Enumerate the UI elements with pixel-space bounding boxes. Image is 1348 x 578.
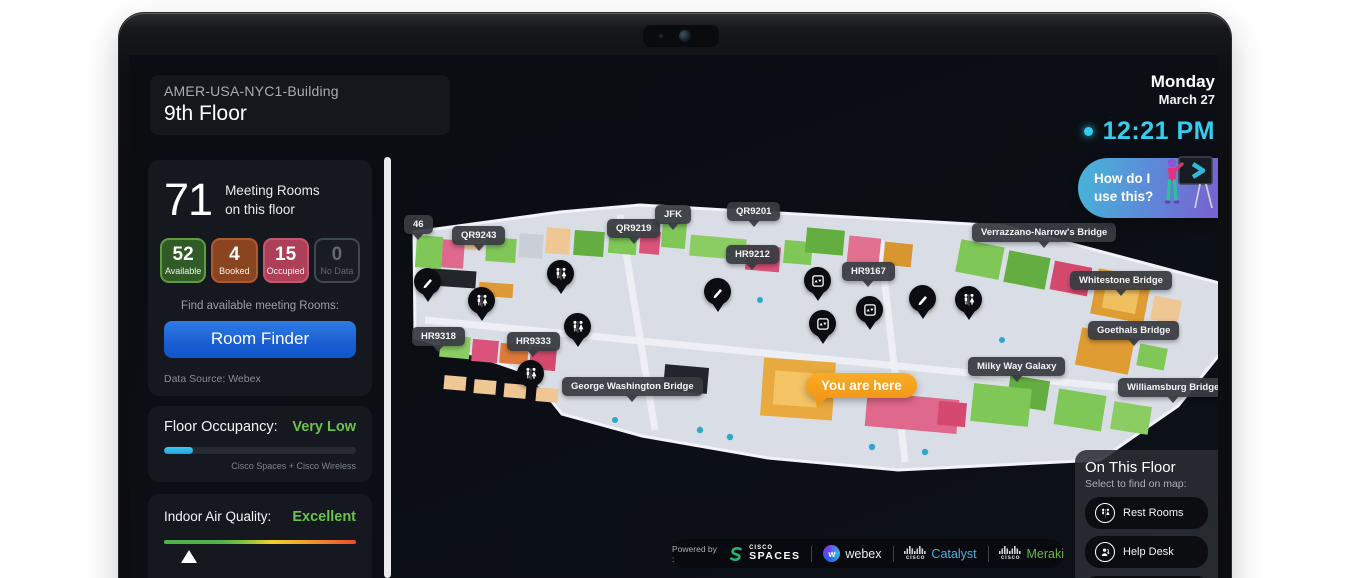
map-label-text: JFK [664, 209, 682, 220]
floor-feature-button[interactable]: Rest Rooms [1085, 497, 1208, 529]
rooms-count-label: Meeting Rooms on this floor [225, 177, 320, 222]
map-label: HR9212 [726, 245, 779, 264]
map-pin[interactable] [909, 285, 936, 312]
map-pin[interactable] [804, 267, 831, 294]
map-label-text: Goethals Bridge [1097, 325, 1170, 336]
air-quality-gradient-bar [164, 540, 356, 544]
cisco-spaces-logo: CISCO SPACES [728, 545, 800, 562]
page: AMER-USA-NYC1-Building 9th Floor Monday … [0, 0, 1348, 578]
rooms-label-line1: Meeting Rooms [225, 182, 320, 201]
map-label: QR9219 [607, 219, 660, 238]
restroom-icon [554, 267, 568, 281]
you-are-here-badge: You are here [806, 373, 917, 398]
map-label: Whitestone Bridge [1070, 271, 1172, 290]
find-rooms-label: Find available meeting Rooms: [148, 300, 372, 312]
day-label: Monday [1084, 72, 1215, 92]
cisco-text: cisco [1001, 555, 1020, 562]
map-label: Milky Way Galaxy [968, 357, 1065, 376]
datetime-panel: Monday March 27 12:21 PM [1084, 72, 1215, 146]
how-to-use-label: How do I use this? [1094, 170, 1153, 205]
aqi-marker [181, 550, 197, 563]
map-label-text: HR9212 [735, 249, 770, 260]
pen-icon [421, 275, 435, 289]
badge-value: 52 [173, 244, 194, 266]
occupancy-bar [164, 447, 356, 454]
cisco-text: cisco [906, 555, 925, 562]
map-label-text: George Washington Bridge [571, 381, 694, 392]
map-label: 46 [404, 215, 433, 234]
air-quality-label: Indoor Air Quality: [164, 509, 271, 524]
webex-icon: w [823, 545, 840, 562]
map-label: QR9201 [727, 202, 780, 221]
display-screen: AMER-USA-NYC1-Building 9th Floor Monday … [130, 55, 1218, 578]
meeting-rooms-panel: 71 Meeting Rooms on this floor 52 Availa… [148, 160, 372, 396]
spaces-swirl-icon [728, 546, 744, 562]
map-label: QR9243 [452, 226, 505, 245]
room-status-badge: 0 No Data [314, 238, 360, 283]
catalyst-word: Catalyst [931, 547, 976, 561]
map-pin[interactable] [809, 310, 836, 337]
map-label-text: QR9201 [736, 206, 771, 217]
map-label: HR9167 [842, 262, 895, 281]
powered-by-bar: Powered by : CISCO SPACES w webex [672, 539, 1064, 568]
map-label-text: QR9243 [461, 230, 496, 241]
webex-word: webex [845, 547, 881, 561]
badge-label: Occupied [267, 266, 305, 276]
map-pin[interactable] [564, 313, 591, 340]
map-label: HR9333 [507, 332, 560, 351]
badge-label: Available [165, 266, 201, 276]
you-are-here-text: You are here [821, 378, 902, 393]
rooms-label-line2: on this floor [225, 201, 320, 220]
map-pin[interactable] [856, 296, 883, 323]
map-pin[interactable] [547, 260, 574, 287]
divider [811, 546, 812, 562]
map-label-text: 46 [413, 219, 424, 230]
map-label-text: Verrazzano-Narrow's Bridge [981, 227, 1107, 238]
camera-lens [679, 30, 691, 42]
elevator-icon [811, 274, 825, 288]
room-status-badges: 52 Available 4 Booked 15 Occupied 0 No D… [148, 228, 372, 283]
location-panel: AMER-USA-NYC1-Building 9th Floor [150, 75, 450, 135]
time-status-dot [1084, 127, 1093, 136]
powered-by-label: Powered by : [672, 544, 717, 564]
restroom-icon [962, 293, 976, 307]
on-this-floor-title: On This Floor [1085, 459, 1208, 476]
badge-label: Booked [219, 266, 250, 276]
air-quality-value: Excellent [292, 509, 356, 525]
restroom-icon [571, 320, 585, 334]
spaces-word: SPACES [749, 551, 800, 562]
map-label-text: Williamsburg Bridge [1127, 382, 1218, 393]
laptop-camera [643, 25, 719, 47]
help-line2: use this? [1094, 188, 1153, 206]
map-label-text: Whitestone Bridge [1079, 275, 1163, 286]
cisco-meraki-logo: cisco Meraki [999, 546, 1064, 562]
time-label: 12:21 PM [1103, 117, 1215, 146]
floor-name: 9th Floor [164, 102, 436, 126]
floor-feature-button[interactable]: Help Desk [1085, 536, 1208, 568]
occupancy-source: Cisco Spaces + Cisco Wireless [164, 461, 356, 471]
occupancy-value: Very Low [292, 419, 356, 435]
on-this-floor-subtitle: Select to find on map: [1085, 478, 1208, 490]
map-label: JFK [655, 205, 691, 224]
map-label: George Washington Bridge [562, 377, 703, 396]
divider [893, 546, 894, 562]
camera-indicator-dot [659, 34, 663, 38]
floor-feature-label: Help Desk [1123, 546, 1174, 558]
badge-value: 15 [275, 244, 296, 266]
map-label: HR9318 [412, 327, 465, 346]
room-status-badge: 52 Available [160, 238, 206, 283]
rooms-count: 71 [164, 177, 212, 222]
restroom-icon [524, 367, 538, 381]
floor-feature-label: Rest Rooms [1123, 507, 1184, 519]
help-line1: How do I [1094, 170, 1153, 188]
cisco-bars-icon [904, 546, 926, 554]
restroom-icon [1100, 508, 1111, 519]
map-pin[interactable] [468, 287, 495, 314]
map-label-text: HR9167 [851, 266, 886, 277]
map-label-text: HR9318 [421, 331, 456, 342]
presenter-illustration-icon [1152, 154, 1216, 216]
help-desk-icon [1100, 547, 1111, 558]
map-label: Williamsburg Bridge [1118, 378, 1218, 397]
occupancy-fill [164, 447, 193, 454]
on-this-floor-panel: On This Floor Select to find on map: [1075, 450, 1218, 578]
room-status-badge: 15 Occupied [263, 238, 309, 283]
webex-logo: w webex [823, 545, 881, 562]
air-quality-panel: Indoor Air Quality: Excellent [148, 494, 372, 578]
pen-icon [711, 285, 725, 299]
map-label-text: HR9333 [516, 336, 551, 347]
date-label: March 27 [1084, 92, 1215, 107]
badge-value: 4 [229, 244, 240, 266]
map-label-text: QR9219 [616, 223, 651, 234]
building-name: AMER-USA-NYC1-Building [164, 83, 436, 99]
badge-label: No Data [320, 266, 353, 276]
occupancy-label: Floor Occupancy: [164, 419, 278, 435]
floor-occupancy-panel: Floor Occupancy: Very Low Cisco Spaces +… [148, 406, 372, 482]
room-status-badge: 4 Booked [211, 238, 257, 283]
screen-content: AMER-USA-NYC1-Building 9th Floor Monday … [130, 55, 1218, 578]
meraki-word: Meraki [1026, 547, 1064, 561]
restroom-icon [475, 294, 489, 308]
map-label: Goethals Bridge [1088, 321, 1179, 340]
data-source-label: Data Source: Webex [164, 373, 356, 385]
map-pin[interactable] [955, 286, 982, 313]
cisco-bars-icon [999, 546, 1021, 554]
map-label-text: Milky Way Galaxy [977, 361, 1056, 372]
how-to-use-button[interactable]: How do I use this? [1078, 158, 1218, 218]
map-pin[interactable] [414, 268, 441, 295]
elevator-icon [863, 303, 877, 317]
map-label: Verrazzano-Narrow's Bridge [972, 223, 1116, 242]
map-pin[interactable] [704, 278, 731, 305]
pen-icon [916, 292, 930, 306]
badge-value: 0 [332, 244, 343, 266]
divider [988, 546, 989, 562]
elevator-icon [816, 317, 830, 331]
sidebar-scrollbar[interactable] [384, 157, 391, 578]
cisco-catalyst-logo: cisco Catalyst [904, 546, 976, 562]
map-pin[interactable] [517, 360, 544, 387]
room-finder-button[interactable]: Room Finder [164, 321, 356, 358]
